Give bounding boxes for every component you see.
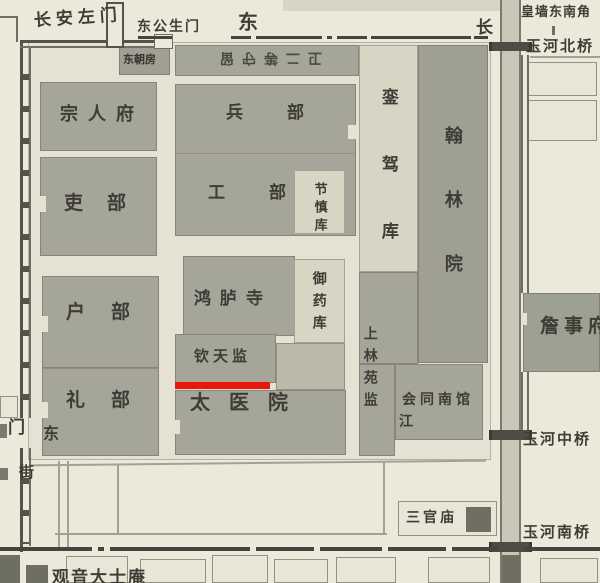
sanguanmiao-hall	[466, 507, 491, 532]
label-jieshenku: 节慎库	[312, 182, 326, 236]
label-libu-rites: 礼部	[66, 391, 156, 411]
river-east-wall	[521, 55, 523, 293]
label-sanguanmiao: 三官庙	[406, 511, 457, 526]
label-libu-officials: 吏部	[64, 194, 150, 214]
jade-river	[500, 0, 521, 583]
river-south-segment	[502, 555, 520, 583]
label-qintianjian: 钦天监	[194, 349, 251, 365]
street-dash-s	[0, 547, 92, 551]
street-dash	[231, 36, 251, 39]
river-east-wall-lower-inner	[527, 372, 529, 430]
clipped-glyph	[0, 424, 7, 438]
label-dong-gongsheng-gate: 东公生门	[137, 20, 201, 35]
label-zhanshifu: 詹事府	[540, 317, 600, 337]
courtyard-s	[428, 557, 490, 583]
north-wall-b	[124, 40, 156, 43]
street-line-ne	[530, 56, 600, 58]
west-wall-inner	[29, 46, 31, 418]
street-dash-s	[98, 547, 104, 551]
label-hubu: 户部	[66, 303, 156, 323]
street-dash	[371, 36, 471, 39]
street-dash-s	[452, 547, 498, 551]
label-zongrenfu: 宗人府	[60, 106, 144, 125]
building-sw	[0, 555, 20, 583]
street-dash-s	[256, 547, 314, 551]
lane-line	[30, 460, 486, 467]
courtyard-s	[274, 559, 328, 583]
north-wall-a	[20, 40, 108, 43]
guanyin-hall	[26, 565, 48, 583]
label-taiyiyuan: 太医院	[190, 392, 307, 413]
courtyard-mid-block	[276, 343, 345, 390]
label-yuyaoku: 御药库	[311, 271, 326, 337]
top-shade-strip	[283, 0, 500, 11]
top-left-rail-h	[0, 16, 17, 18]
label-luanjiaku: 銮驾库	[378, 88, 396, 289]
lane-line	[117, 465, 119, 533]
north-wall-a-inner	[20, 46, 108, 48]
label-gate-partial: 门	[8, 420, 25, 438]
street-dash	[327, 36, 332, 39]
label-dong-corner: 东	[43, 426, 59, 443]
label-bingbu: 兵部	[226, 105, 348, 123]
courtyard-s	[140, 559, 206, 583]
courtyard-s	[212, 555, 268, 583]
courtyard-w	[0, 396, 18, 418]
courtyard-ne	[527, 100, 597, 141]
street-dash-s	[388, 547, 446, 551]
wall-notch	[171, 320, 180, 334]
street-dash-s	[110, 547, 250, 551]
courtyard-se	[540, 558, 598, 583]
highlight-underline-qintianjian	[175, 382, 270, 389]
top-left-rail	[16, 16, 18, 42]
label-guanyin-temple: 观音大士庵	[52, 570, 147, 583]
label-street-partial: 街	[19, 465, 34, 481]
label-dong-chaofang: 东朝房	[123, 54, 156, 66]
river-east-wall-inner	[527, 55, 529, 293]
north-wall-b-inner	[124, 46, 156, 48]
label-huitong-nanguan: 会同南馆	[402, 393, 474, 408]
wall-notch	[36, 196, 46, 212]
label-street-dong: 东	[238, 12, 258, 33]
street-dash-s	[524, 547, 600, 551]
clipped-glyph	[0, 468, 8, 480]
courtyard-s	[336, 557, 396, 583]
street-dash	[256, 36, 322, 39]
label-shanglin-yuanjian: 上林苑监	[362, 326, 377, 414]
label-street-chang: 长	[476, 20, 493, 38]
river-east-wall-lower	[521, 372, 523, 430]
wall-notch	[38, 402, 48, 418]
libu-rites-block	[42, 368, 159, 456]
street-dash	[337, 36, 367, 39]
wall-notch	[38, 316, 48, 332]
label-yuhe-middle-bridge: 玉河中桥	[523, 432, 591, 448]
street-dash-s	[320, 547, 382, 551]
map-canvas: 长安左门 东公生门 东 长 皇墙东南角 玉河北桥 东朝房 卫二等守留 宗人府 吏…	[0, 0, 600, 583]
lane-line	[383, 462, 385, 534]
label-hanlinyuan: 翰林院	[442, 126, 461, 318]
lane-line	[55, 533, 387, 535]
bing-gong-divider	[176, 153, 355, 154]
wall-notch	[521, 313, 527, 325]
west-wall-crenellation	[22, 48, 29, 414]
label-huangqiang-corner: 皇墙东南角	[521, 6, 591, 20]
label-yuhe-south-bridge: 玉河南桥	[523, 525, 591, 541]
label-guard-strip: 卫二等守留	[175, 50, 359, 65]
street-dash	[138, 36, 172, 39]
lane-line	[67, 461, 69, 547]
label-honglusi: 鸿胪寺	[194, 291, 272, 309]
lane-line	[58, 461, 60, 547]
wall-notch	[348, 125, 356, 139]
wall-notch	[171, 420, 180, 434]
label-yuhe-north-bridge: 玉河北桥	[526, 39, 594, 55]
corner-pointer	[552, 26, 555, 35]
courtyard-ne	[527, 62, 597, 96]
label-jiang: 江	[399, 415, 413, 430]
